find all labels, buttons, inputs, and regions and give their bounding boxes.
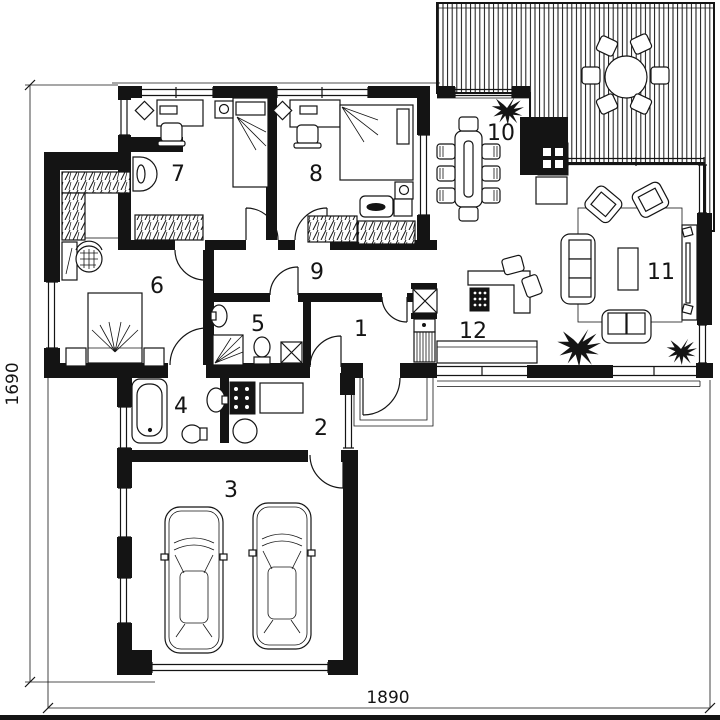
floor-plan-canvas: 1 2 3 4 5 6 7 8 9 10 11 12 1690 1890 (0, 0, 720, 720)
room-label-7: 7 (171, 162, 185, 187)
room-label-8: 8 (309, 162, 323, 187)
garage-wall-windows (117, 407, 132, 623)
room-label-5: 5 (251, 312, 265, 337)
room-label-1: 1 (354, 317, 368, 342)
hall-builtins (411, 283, 437, 362)
room-label-10: 10 (487, 121, 515, 146)
room-label-11: 11 (647, 260, 675, 285)
dimension-width-label: 1890 (366, 688, 409, 708)
bottom-border-bar (0, 715, 720, 720)
floor-plan-drawing: 1 2 3 4 5 6 7 8 9 10 11 12 1690 1890 (0, 0, 720, 720)
room-label-3: 3 (224, 478, 238, 503)
room-label-9: 9 (310, 260, 324, 285)
room-label-6: 6 (150, 274, 164, 299)
dimension-height-label: 1690 (3, 362, 23, 405)
room-label-4: 4 (174, 394, 188, 419)
room-label-12: 12 (459, 319, 487, 344)
room-label-2: 2 (314, 416, 328, 441)
